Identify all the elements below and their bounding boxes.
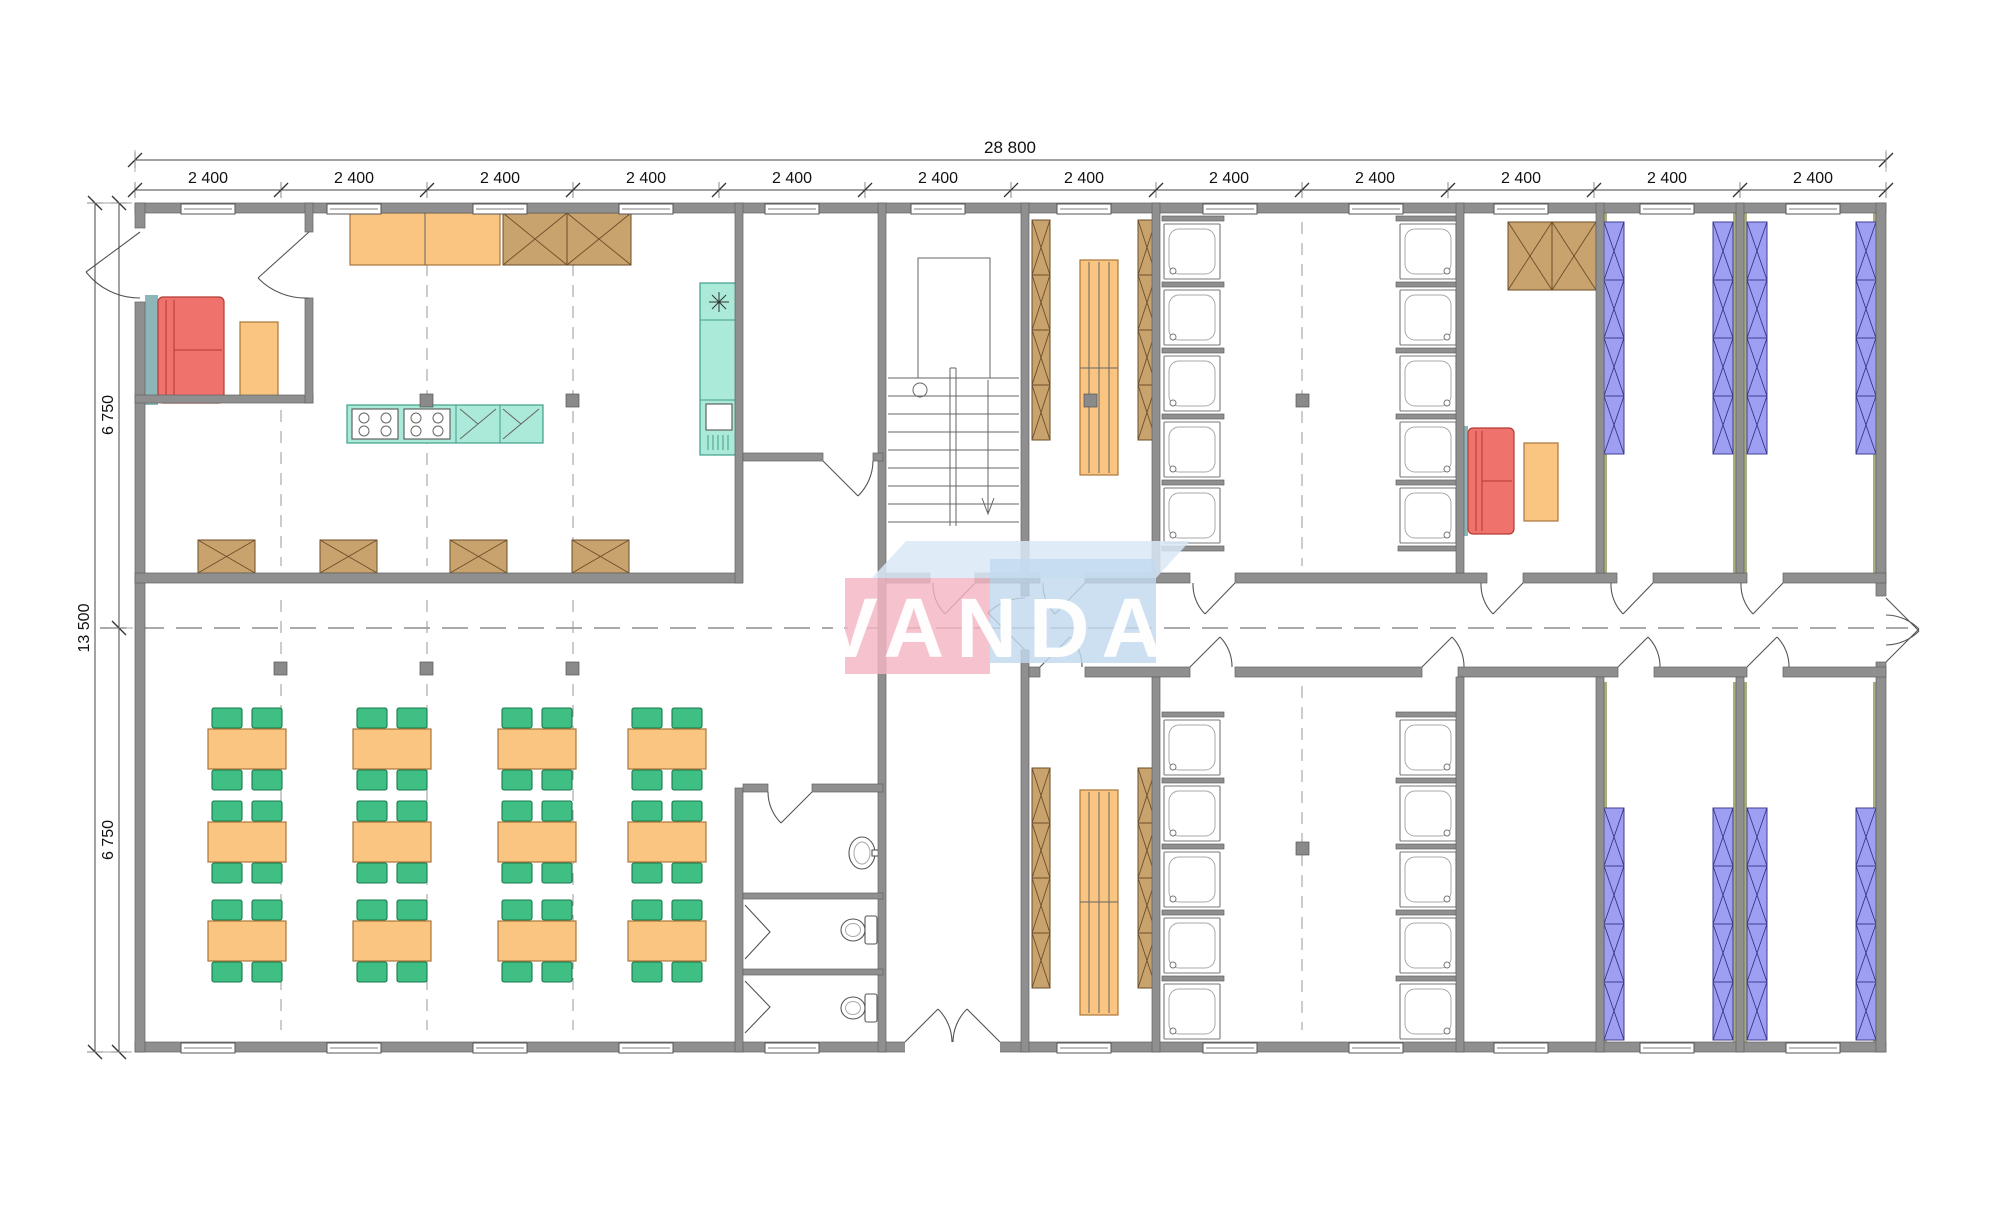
bunk-bed [1856,808,1876,866]
window [1203,1043,1257,1053]
staircase [888,258,1019,526]
entry-lounge-room [145,295,278,405]
bunk-bed [1713,808,1733,866]
window [619,1043,673,1053]
window [327,1043,381,1053]
bunk-bed [1713,222,1733,280]
column-marker [1084,394,1097,407]
wall [735,788,743,1052]
bunk-bed [1604,222,1624,280]
entrance-door-leaf [905,1009,952,1042]
dim-label-bay: 2 400 [1647,170,1687,187]
bunk-bed [1747,396,1767,454]
coffee-table [1524,443,1558,521]
window [765,1043,819,1053]
wall [135,395,313,403]
dim-label-bay: 2 400 [1501,170,1541,187]
dining-hall [208,708,706,982]
window [765,204,819,214]
wall-padding [145,295,158,405]
window [1640,1043,1694,1053]
shower-stall [1162,712,1224,775]
dining-table-set [628,900,706,982]
wall [1736,677,1744,1052]
door-swing [1422,637,1464,667]
locker-room-upper [1032,220,1156,475]
dim-label-bay: 2 400 [334,170,374,187]
bunk-bed [1713,338,1733,396]
cooktop-icon [352,409,398,439]
column-marker [420,662,433,675]
window [1786,204,1840,214]
dining-table-set [353,801,431,883]
toilet-icon [841,916,877,944]
shower-stall [1396,910,1458,973]
shower-stall [1162,348,1224,411]
bunk-bed [1747,222,1767,280]
bunk-bed [1713,280,1733,338]
bunk-bed [1604,396,1624,454]
bench [1080,790,1118,1015]
bunk-bed [1747,982,1767,1040]
bunk-bed [1856,866,1876,924]
dining-table-set [353,708,431,790]
wall [305,203,313,232]
dim-label-half-depth: 6 750 [100,395,117,435]
locker-icon [1032,385,1050,440]
dining-table-set [628,801,706,883]
bunk-bed [1856,396,1876,454]
entrance-opening [905,1040,1000,1054]
wall [743,969,883,975]
wall [1021,650,1029,1052]
column-marker [566,394,579,407]
entrance-door-leaf [953,1009,1000,1042]
bunk-bed [1856,982,1876,1040]
shower-stall [1162,414,1224,477]
bunk-bed [1856,924,1876,982]
wall [735,203,743,583]
bunk-bed [1856,280,1876,338]
window [1494,1043,1548,1053]
door-swing [768,792,812,823]
window [911,204,965,214]
exterior-wall-left [135,203,145,228]
corridor-wall [1235,667,1422,677]
wall [1596,677,1604,1052]
wall [873,453,883,461]
shower-stall [1162,778,1224,841]
bunk-bed [1604,924,1624,982]
exit-door-leaf [1886,598,1919,645]
bunk-bed [1604,808,1624,866]
locker-icon [1032,220,1050,275]
locker-room-lower [1032,768,1156,1015]
column-marker [420,394,433,407]
locker-icon [1032,768,1050,823]
bunk-bed [1604,338,1624,396]
wall [1456,677,1464,1052]
dim-label-bay: 2 400 [626,170,666,187]
dim-label-bay: 2 400 [1209,170,1249,187]
exterior-wall-right [1876,662,1886,1052]
dim-label-bay: 2 400 [918,170,958,187]
window [619,204,673,214]
sink-icon [706,404,732,430]
door-swing [1481,583,1523,614]
bunk-bed [1604,280,1624,338]
dining-table-set [498,801,576,883]
wall [1456,203,1464,573]
dining-table-set [353,900,431,982]
wall [743,453,823,461]
door-swing [1193,583,1235,614]
bunk-bed [1713,866,1733,924]
dining-table-set [498,900,576,982]
dim-label-total-depth: 13 500 [76,603,93,652]
fridge-sink-unit [700,283,738,455]
bunk-bed [1604,866,1624,924]
dim-label-bay: 2 400 [1064,170,1104,187]
shower-stall [1162,216,1224,279]
door-swing [1747,637,1789,667]
wc-folding-door [745,905,770,959]
day-room-upper [1464,222,1596,536]
watermark-text: VANDA [822,581,1174,675]
serving-cabinet-icon [320,540,377,573]
wall [743,784,768,792]
dim-label-bay: 2 400 [480,170,520,187]
window [473,204,527,214]
locker-icon [1032,330,1050,385]
wall [1152,203,1160,573]
dining-table-set [628,708,706,790]
window [1786,1043,1840,1053]
dim-label-bay: 2 400 [188,170,228,187]
locker-icon [1032,933,1050,988]
window [1057,204,1111,214]
corridor-wall [1783,667,1886,677]
bunk-bed [1856,338,1876,396]
shower-stall [1396,216,1458,279]
cabinet-icon [503,213,567,265]
exterior-wall-right [1876,203,1886,596]
dim-label-half-depth: 6 750 [100,820,117,860]
locker-icon [1032,878,1050,933]
wall [305,298,313,403]
shower-room-upper [1162,216,1460,551]
bunk-bed [1747,338,1767,396]
dining-table-set [208,900,286,982]
floor-plan-canvas: 28 800 2 400 2 400 2 400 2 400 2 400 2 4… [0,0,2000,1216]
cabinet-icon [567,213,631,265]
window [181,1043,235,1053]
shower-stall [1396,414,1458,477]
window [1349,1043,1403,1053]
door-swing [1741,583,1783,614]
bunk-bed [1747,808,1767,866]
corridor-wall [1653,573,1747,583]
shower-stall [1162,282,1224,345]
bunk-bed [1747,924,1767,982]
bunk-bed [1747,280,1767,338]
bench [1080,260,1118,475]
serving-cabinet-icon [572,540,629,573]
shower-stall [1396,712,1458,775]
stair-start-marker [913,383,927,397]
corridor-wall [1235,573,1487,583]
shower-room-lower [1162,712,1458,1039]
door-swing [1190,637,1232,667]
serving-cabinet-icon [198,540,255,573]
shower-stall [1162,480,1224,543]
window [1494,204,1548,214]
column-marker [274,662,287,675]
door-swing [1611,583,1653,614]
door-swing [258,232,309,298]
kitchen-island [347,405,543,443]
bunk-bed [1747,866,1767,924]
dim-label-total-width: 28 800 [984,138,1036,157]
wall [1736,203,1744,573]
freezer-star-icon [709,292,729,312]
wall [1596,203,1604,573]
corridor-wall [1523,573,1617,583]
shower-stall [1396,348,1458,411]
bunk-bed [1713,982,1733,1040]
dim-label-bay: 2 400 [772,170,812,187]
washroom [745,837,880,1033]
serving-cabinet-icon [450,540,507,573]
door-swing [86,232,140,298]
locker-icon [1032,823,1050,878]
window [181,204,235,214]
corridor-wall [1783,573,1886,583]
dining-table-set [208,708,286,790]
door-swing [1618,637,1660,667]
cooktop-icon [404,409,450,439]
wardrobe [1508,222,1596,290]
coffee-table [240,322,278,398]
dining-table-set [498,708,576,790]
bunk-bed [1713,396,1733,454]
wall [1021,203,1029,596]
shower-stall [1396,282,1458,345]
window [1349,204,1403,214]
wall [812,784,883,792]
shower-stall [1396,844,1458,907]
window [1640,204,1694,214]
wc-folding-door [745,981,770,1033]
window [1057,1043,1111,1053]
exterior-wall-top [135,203,1886,213]
wall [1152,677,1160,1052]
bunk-bed [1856,222,1876,280]
exit-door-leaf [1886,615,1919,662]
bunk-bed [1713,924,1733,982]
exterior-wall-bottom [135,1042,1886,1052]
door-swing [823,461,873,496]
wall-kitchen-dining [135,573,742,583]
bunk-bed [1604,982,1624,1040]
toilet-icon [841,994,877,1022]
window [327,204,381,214]
dim-label-bay: 2 400 [1355,170,1395,187]
kitchen [198,213,738,573]
watermark: VANDA [822,541,1190,675]
shower-stall [1162,910,1224,973]
column-marker [1296,394,1309,407]
exterior-wall-left [135,302,145,1052]
corridor-wall [1654,667,1747,677]
shower-stall [1162,976,1224,1039]
dining-table-set [208,801,286,883]
wall [743,893,883,899]
locker-icon [1032,275,1050,330]
shower-stall [1396,480,1458,543]
column-marker [566,662,579,675]
window [1203,204,1257,214]
window [473,1043,527,1053]
dim-label-bay: 2 400 [1793,170,1833,187]
shower-stall [1396,976,1458,1039]
column-marker [1296,842,1309,855]
shower-stall [1396,778,1458,841]
corridor-wall [1458,667,1618,677]
shower-stall [1162,844,1224,907]
